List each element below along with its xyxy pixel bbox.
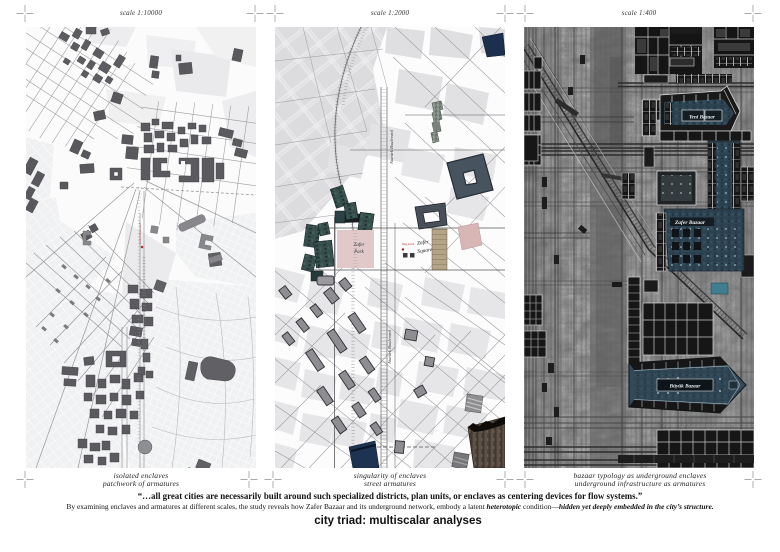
svg-text:flag point: flag point — [402, 242, 414, 246]
svg-text:Yeni Bazaar: Yeni Bazaar — [689, 115, 716, 121]
svg-text:Zafer Bazaar: Zafer Bazaar — [674, 220, 706, 226]
svg-text:Atatürk Boulevard: Atatürk Boulevard — [138, 222, 142, 246]
svg-text:Büyük Bazaar: Büyük Bazaar — [669, 384, 702, 390]
svg-text:Atatürk Boulevard: Atatürk Boulevard — [389, 129, 394, 165]
svg-text:Park: Park — [353, 250, 365, 255]
svg-text:Zafer: Zafer — [354, 243, 365, 248]
svg-text:Atatürk Boulevard: Atatürk Boulevard — [387, 329, 392, 365]
